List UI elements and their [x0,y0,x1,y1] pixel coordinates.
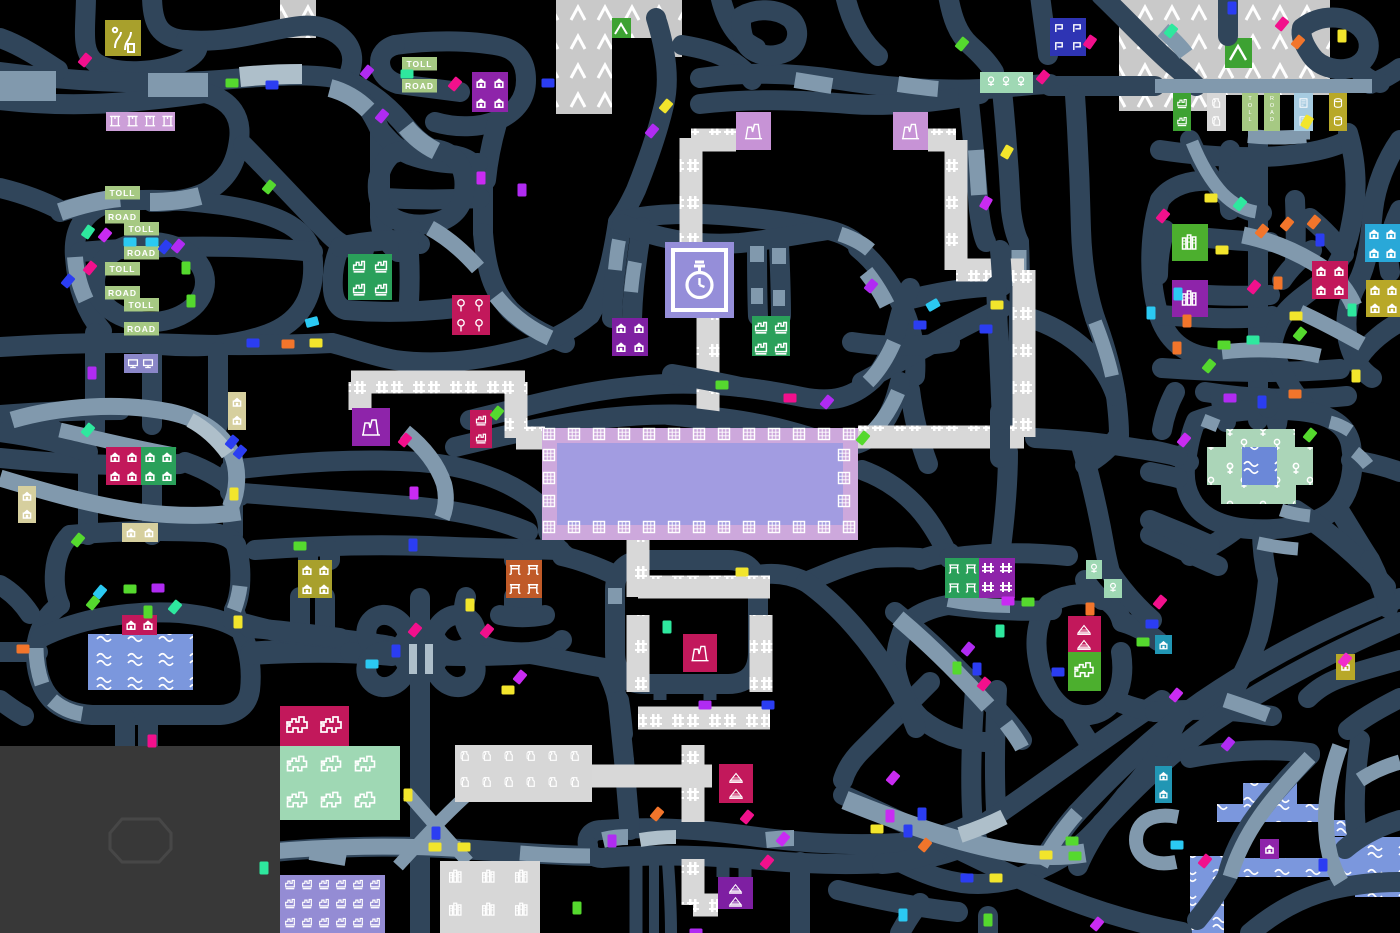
svg-text:O: O [1270,103,1275,109]
svg-text:TOLL: TOLL [128,224,154,234]
svg-text:L: L [1248,117,1251,123]
svg-text:TOLL: TOLL [128,300,154,310]
svg-text:TOLL: TOLL [109,264,135,274]
svg-text:ROAD: ROAD [405,81,434,91]
svg-text:ROAD: ROAD [108,288,137,298]
svg-text:TOLL: TOLL [109,188,135,198]
svg-text:TOLL: TOLL [406,59,432,69]
svg-text:ROAD: ROAD [108,212,137,222]
svg-text:O: O [1248,103,1253,109]
svg-text:R: R [1270,96,1274,102]
svg-text:A: A [1270,110,1274,116]
svg-text:ROAD: ROAD [127,324,156,334]
svg-text:L: L [1248,110,1251,116]
svg-text:ROAD: ROAD [127,248,156,258]
svg-text:D: D [1270,117,1274,123]
